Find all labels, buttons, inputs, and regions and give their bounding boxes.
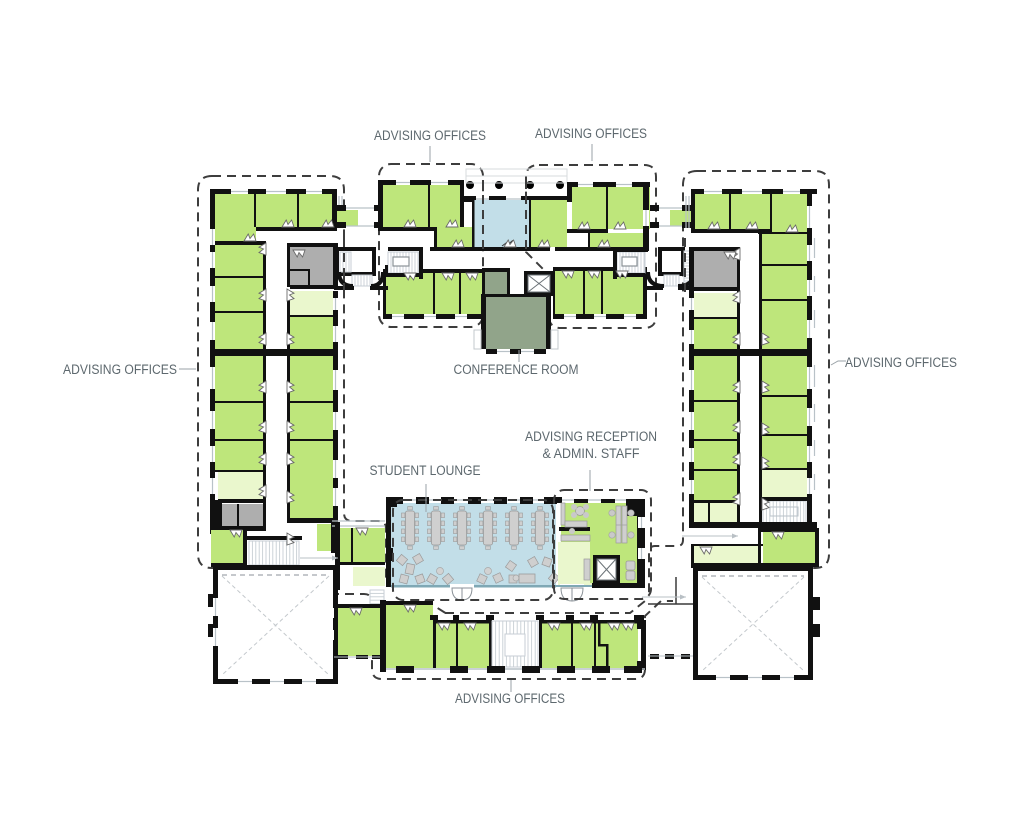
svg-text:ADVISING OFFICES: ADVISING OFFICES: [455, 691, 565, 707]
svg-text:STUDENT LOUNGE: STUDENT LOUNGE: [370, 463, 481, 479]
svg-text:ADVISING OFFICES: ADVISING OFFICES: [845, 355, 957, 371]
svg-text:ADVISING OFFICES: ADVISING OFFICES: [535, 126, 647, 142]
svg-text:ADVISING OFFICES: ADVISING OFFICES: [63, 362, 177, 378]
svg-text:CONFERENCE ROOM: CONFERENCE ROOM: [454, 362, 579, 378]
svg-text:ADVISING OFFICES: ADVISING OFFICES: [374, 128, 486, 144]
svg-text:& ADMIN. STAFF: & ADMIN. STAFF: [543, 446, 640, 462]
svg-text:ADVISING RECEPTION: ADVISING RECEPTION: [525, 429, 657, 445]
